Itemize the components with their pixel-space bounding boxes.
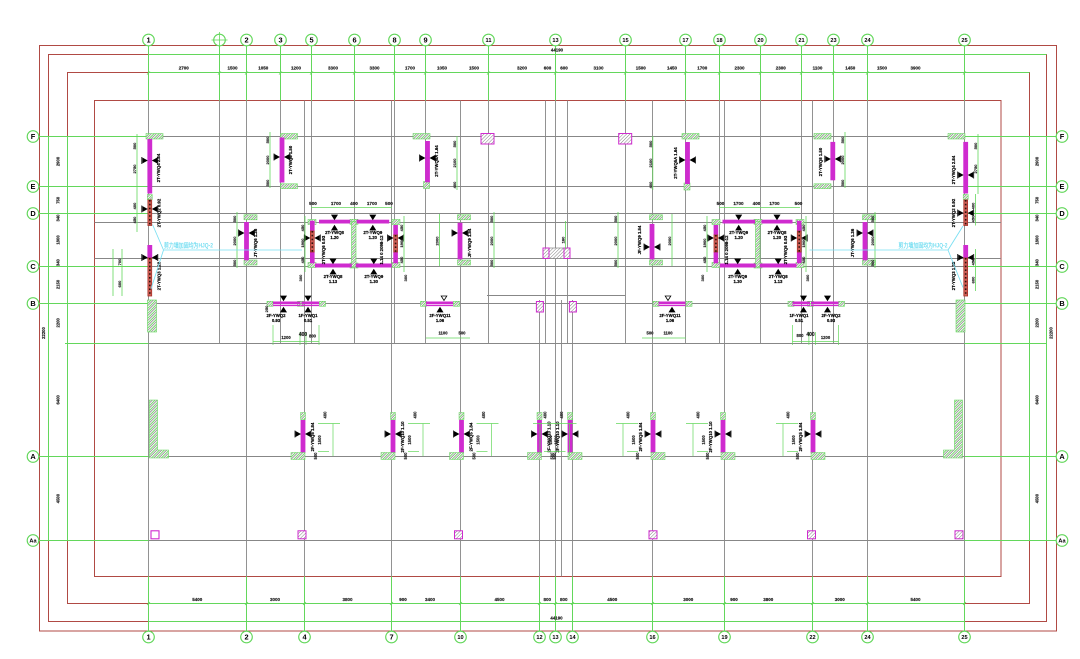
svg-text:600: 600	[560, 65, 568, 70]
svg-text:B: B	[30, 299, 35, 308]
svg-text:500: 500	[840, 136, 845, 143]
svg-text:300: 300	[403, 274, 408, 281]
svg-text:4500: 4500	[56, 493, 61, 503]
svg-text:1500: 1500	[636, 65, 647, 70]
svg-text:500: 500	[552, 452, 557, 460]
svg-text:400: 400	[559, 411, 564, 419]
svg-text:JT-YWQ6 1.36: JT-YWQ6 1.36	[253, 228, 258, 257]
svg-text:2T-YWQ8 1.50: 2T-YWQ8 1.50	[288, 145, 293, 174]
svg-text:500: 500	[489, 259, 494, 266]
svg-text:3300: 3300	[369, 65, 380, 70]
svg-text:500: 500	[717, 201, 725, 206]
svg-text:300: 300	[298, 274, 303, 281]
svg-text:800: 800	[560, 597, 568, 602]
svg-text:22: 22	[809, 635, 815, 641]
svg-text:500: 500	[232, 215, 237, 222]
svg-text:450: 450	[399, 256, 404, 263]
svg-text:400: 400	[299, 332, 308, 338]
svg-text:450: 450	[801, 256, 806, 263]
svg-text:13: 13	[552, 38, 558, 44]
svg-text:500: 500	[313, 452, 318, 460]
svg-text:3100: 3100	[593, 65, 604, 70]
svg-text:0.93: 0.93	[827, 318, 836, 323]
svg-text:3000: 3000	[835, 597, 846, 602]
svg-text:2T-YWQ3 1.28: 2T-YWQ3 1.28	[951, 261, 956, 290]
svg-text:500: 500	[459, 331, 467, 336]
svg-text:400: 400	[132, 202, 137, 209]
svg-text:450: 450	[300, 256, 305, 263]
svg-text:4500: 4500	[607, 597, 618, 602]
svg-text:22200: 22200	[1049, 327, 1054, 339]
svg-text:1700: 1700	[331, 201, 342, 206]
svg-text:1450: 1450	[667, 65, 678, 70]
svg-text:1.14 0 2098-12: 1.14 0 2098-12	[379, 235, 384, 265]
svg-text:400: 400	[481, 411, 486, 419]
svg-text:400: 400	[543, 411, 548, 419]
svg-text:24: 24	[864, 38, 871, 44]
svg-text:7: 7	[389, 633, 393, 642]
svg-text:500: 500	[840, 179, 845, 186]
svg-text:400: 400	[626, 411, 631, 419]
svg-text:8: 8	[392, 36, 396, 45]
svg-text:25: 25	[961, 635, 967, 641]
svg-text:500: 500	[403, 452, 408, 460]
svg-text:2900: 2900	[56, 156, 61, 166]
svg-text:450: 450	[702, 224, 707, 231]
svg-text:500: 500	[647, 331, 655, 336]
svg-text:20: 20	[757, 38, 763, 44]
svg-text:3400: 3400	[425, 597, 436, 602]
svg-text:2300: 2300	[776, 65, 787, 70]
svg-text:1050: 1050	[437, 65, 448, 70]
svg-text:2100: 2100	[452, 158, 457, 168]
svg-text:2T-YWQ5A 1.64: 2T-YWQ5A 1.64	[434, 145, 439, 177]
svg-text:1.06: 1.06	[666, 318, 675, 323]
svg-text:1.06: 1.06	[436, 318, 445, 323]
svg-text:1500: 1500	[227, 65, 238, 70]
svg-text:2T-YWQ4 2.84: 2T-YWQ4 2.84	[156, 153, 161, 182]
svg-text:450: 450	[801, 224, 806, 231]
svg-text:500: 500	[705, 452, 710, 460]
svg-text:F: F	[1060, 132, 1065, 141]
svg-text:1500: 1500	[476, 435, 481, 445]
svg-text:1500: 1500	[548, 435, 553, 445]
svg-text:2F-YWQ10 1.10: 2F-YWQ10 1.10	[400, 421, 405, 453]
svg-text:1900: 1900	[399, 238, 404, 248]
svg-text:3000: 3000	[683, 597, 694, 602]
svg-text:2T-YWQ4 2.84: 2T-YWQ4 2.84	[951, 155, 956, 184]
svg-text:剪力墙加固均为HJQ-2: 剪力墙加固均为HJQ-2	[164, 241, 213, 250]
svg-text:500: 500	[472, 452, 477, 460]
svg-text:E: E	[1060, 182, 1065, 191]
svg-text:500: 500	[452, 140, 457, 147]
svg-text:1500: 1500	[469, 65, 480, 70]
svg-text:2F-YWQ5 1.84: 2F-YWQ5 1.84	[798, 422, 803, 451]
svg-text:1.13: 1.13	[329, 279, 338, 284]
svg-text:750: 750	[56, 196, 61, 204]
svg-text:2: 2	[244, 633, 248, 642]
svg-text:3: 3	[278, 36, 282, 45]
svg-text:2700: 2700	[179, 65, 190, 70]
svg-text:1450: 1450	[845, 65, 856, 70]
svg-text:300: 300	[805, 274, 810, 281]
svg-text:900: 900	[399, 597, 407, 602]
svg-text:2200: 2200	[1035, 317, 1040, 327]
svg-text:2150: 2150	[56, 279, 61, 289]
svg-text:400: 400	[648, 181, 653, 188]
svg-text:2T-YWQ5A 1.64: 2T-YWQ5A 1.64	[673, 147, 678, 179]
svg-text:1200: 1200	[281, 335, 291, 340]
svg-text:450: 450	[971, 258, 976, 265]
svg-text:600: 600	[971, 276, 976, 283]
svg-text:2300: 2300	[734, 65, 745, 70]
svg-text:3800: 3800	[342, 597, 353, 602]
svg-text:D: D	[1059, 209, 1065, 218]
svg-text:1700: 1700	[405, 65, 416, 70]
svg-text:500: 500	[309, 201, 317, 206]
svg-text:340: 340	[1035, 214, 1040, 222]
svg-text:44190: 44190	[551, 47, 564, 52]
svg-text:2000: 2000	[265, 155, 270, 165]
svg-text:400: 400	[806, 332, 815, 338]
svg-text:700: 700	[117, 258, 122, 265]
svg-text:500: 500	[795, 201, 803, 206]
svg-text:21: 21	[798, 38, 804, 44]
svg-text:JF-YWQ9 1.54: JF-YWQ9 1.54	[637, 225, 642, 254]
svg-text:11: 11	[486, 38, 492, 44]
svg-text:15: 15	[622, 38, 628, 44]
svg-text:1900: 1900	[702, 238, 707, 248]
svg-text:450: 450	[300, 224, 305, 231]
svg-text:1.14 0 2098-12: 1.14 0 2098-12	[724, 235, 729, 265]
svg-text:2F-YWQ5 1.84: 2F-YWQ5 1.84	[638, 422, 643, 451]
svg-text:500: 500	[232, 259, 237, 266]
svg-text:16: 16	[649, 635, 655, 641]
svg-text:A: A	[30, 452, 36, 461]
svg-text:1700: 1700	[367, 201, 378, 206]
svg-text:400: 400	[753, 201, 761, 206]
svg-text:0.51: 0.51	[795, 318, 804, 323]
svg-text:B: B	[1059, 299, 1064, 308]
svg-text:3800: 3800	[763, 597, 774, 602]
svg-text:500: 500	[648, 140, 653, 147]
svg-text:C: C	[1059, 262, 1065, 271]
svg-text:340: 340	[1035, 258, 1040, 266]
svg-text:6400: 6400	[56, 394, 61, 404]
svg-text:1200: 1200	[291, 65, 302, 70]
svg-text:22200: 22200	[41, 327, 46, 339]
svg-text:2000: 2000	[489, 236, 494, 246]
svg-text:180: 180	[561, 236, 566, 243]
svg-text:250: 250	[264, 305, 269, 312]
svg-text:500: 500	[870, 259, 875, 266]
svg-text:1.13: 1.13	[774, 279, 783, 284]
svg-text:500: 500	[613, 259, 618, 266]
svg-text:1.30: 1.30	[734, 279, 743, 284]
svg-text:1700: 1700	[733, 201, 744, 206]
svg-text:2900: 2900	[1035, 156, 1040, 166]
svg-text:800: 800	[309, 334, 317, 339]
svg-text:600: 600	[117, 280, 122, 287]
svg-text:5: 5	[309, 36, 313, 45]
svg-text:3300: 3300	[328, 65, 339, 70]
svg-text:2: 2	[244, 36, 248, 45]
svg-text:500: 500	[635, 452, 640, 460]
svg-text:23: 23	[830, 38, 836, 44]
svg-text:A: A	[1059, 452, 1065, 461]
svg-text:0.51: 0.51	[304, 318, 313, 323]
svg-text:2000: 2000	[435, 236, 440, 246]
svg-text:2T-YWQ2 0.92: 2T-YWQ2 0.92	[157, 198, 162, 227]
svg-text:1800: 1800	[1035, 235, 1040, 245]
svg-text:2F-YWQ5 1.84: 2F-YWQ5 1.84	[469, 422, 474, 451]
svg-text:JF-YWQ9 1.54: JF-YWQ9 1.54	[467, 228, 472, 257]
svg-text:400: 400	[452, 181, 457, 188]
svg-text:1900: 1900	[801, 238, 806, 248]
svg-text:C: C	[30, 262, 36, 271]
svg-text:2200: 2200	[56, 317, 61, 327]
svg-text:17: 17	[682, 38, 688, 44]
svg-text:Aa: Aa	[29, 539, 37, 545]
svg-text:2T-YWQ8 1.50: 2T-YWQ8 1.50	[818, 147, 823, 176]
svg-text:2000: 2000	[232, 236, 237, 246]
svg-text:1.20: 1.20	[369, 235, 378, 240]
svg-text:2100: 2100	[648, 158, 653, 168]
svg-text:14: 14	[569, 635, 576, 641]
svg-text:1100: 1100	[813, 65, 823, 70]
svg-text:6400: 6400	[1035, 394, 1040, 404]
svg-text:2150: 2150	[1035, 279, 1040, 289]
svg-text:1100: 1100	[663, 331, 673, 336]
svg-text:1500: 1500	[701, 435, 706, 445]
svg-text:3000: 3000	[270, 597, 281, 602]
svg-text:2000: 2000	[870, 236, 875, 246]
svg-text:4500: 4500	[494, 597, 505, 602]
svg-text:800: 800	[544, 597, 552, 602]
svg-text:400: 400	[696, 411, 701, 419]
svg-text:500: 500	[795, 452, 800, 460]
svg-text:2000: 2000	[840, 155, 845, 165]
svg-text:12: 12	[536, 635, 542, 641]
svg-text:450: 450	[399, 224, 404, 231]
svg-text:400: 400	[786, 411, 791, 419]
svg-text:剪力墙加固均为HJQ-2: 剪力墙加固均为HJQ-2	[899, 241, 948, 250]
svg-text:600: 600	[544, 65, 552, 70]
svg-text:450: 450	[971, 215, 976, 222]
svg-text:1500: 1500	[877, 65, 888, 70]
svg-text:D: D	[30, 209, 36, 218]
svg-text:2000: 2000	[613, 236, 618, 246]
svg-text:2T-YWQ2 0.92: 2T-YWQ2 0.92	[951, 198, 956, 227]
svg-text:24: 24	[864, 635, 871, 641]
svg-text:500: 500	[870, 215, 875, 222]
svg-text:1200: 1200	[821, 335, 831, 340]
svg-text:2T-YWQ6 0.93: 2T-YWQ6 0.93	[783, 235, 788, 264]
svg-text:4500: 4500	[1035, 493, 1040, 503]
svg-text:1100: 1100	[438, 331, 448, 336]
svg-text:400: 400	[413, 411, 418, 419]
svg-text:2F-YWQ10 1.10: 2F-YWQ10 1.10	[708, 421, 713, 453]
svg-text:44190: 44190	[550, 615, 563, 620]
svg-text:1700: 1700	[697, 65, 708, 70]
svg-text:1: 1	[146, 36, 150, 45]
svg-text:750: 750	[1035, 196, 1040, 204]
svg-text:500: 500	[132, 142, 137, 149]
svg-text:500: 500	[265, 179, 270, 186]
svg-text:2T-YWQ6 0.93: 2T-YWQ6 0.93	[321, 235, 326, 264]
svg-text:900: 900	[730, 597, 738, 602]
svg-text:500: 500	[265, 136, 270, 143]
svg-text:2750: 2750	[132, 164, 137, 174]
svg-text:500: 500	[613, 215, 618, 222]
svg-text:500: 500	[489, 215, 494, 222]
svg-text:13: 13	[552, 635, 558, 641]
svg-text:9: 9	[423, 36, 427, 45]
svg-text:1: 1	[146, 633, 150, 642]
svg-text:1.20: 1.20	[330, 235, 339, 240]
svg-text:450: 450	[702, 256, 707, 263]
svg-text:500: 500	[973, 142, 978, 149]
svg-text:0.93: 0.93	[272, 318, 281, 323]
svg-text:1500: 1500	[407, 435, 412, 445]
svg-text:10: 10	[457, 635, 463, 641]
svg-text:5400: 5400	[910, 597, 921, 602]
svg-text:3900: 3900	[910, 65, 921, 70]
svg-text:25: 25	[961, 38, 967, 44]
svg-text:1.30: 1.30	[370, 279, 379, 284]
svg-text:400: 400	[350, 201, 358, 206]
svg-text:1800: 1800	[56, 235, 61, 245]
svg-text:1500: 1500	[554, 435, 559, 445]
svg-text:Aa: Aa	[1058, 539, 1066, 545]
svg-text:19: 19	[721, 635, 727, 641]
svg-text:2F-YWQ5 1.84: 2F-YWQ5 1.84	[310, 422, 315, 451]
svg-text:1500: 1500	[631, 435, 636, 445]
svg-text:2T-YWQ3 1.28: 2T-YWQ3 1.28	[157, 261, 162, 290]
svg-text:340: 340	[56, 258, 61, 266]
svg-text:1500: 1500	[791, 435, 796, 445]
svg-text:JT-YWQ6 1.36: JT-YWQ6 1.36	[850, 228, 855, 257]
svg-text:1.20: 1.20	[773, 235, 782, 240]
svg-text:500: 500	[385, 201, 393, 206]
svg-text:18: 18	[716, 38, 722, 44]
svg-text:3200: 3200	[517, 65, 528, 70]
svg-text:340: 340	[56, 214, 61, 222]
svg-text:800: 800	[797, 333, 805, 338]
svg-text:400: 400	[323, 411, 328, 419]
svg-text:400: 400	[971, 202, 976, 209]
svg-text:1050: 1050	[258, 65, 269, 70]
svg-text:5400: 5400	[192, 597, 203, 602]
svg-text:1700: 1700	[769, 201, 780, 206]
svg-text:1900: 1900	[300, 238, 305, 248]
svg-text:6: 6	[352, 36, 356, 45]
svg-text:E: E	[31, 182, 36, 191]
svg-text:1.20: 1.20	[735, 235, 744, 240]
svg-text:450: 450	[132, 216, 137, 223]
svg-text:1500: 1500	[317, 435, 322, 445]
svg-text:2750: 2750	[973, 164, 978, 174]
svg-text:F: F	[31, 132, 36, 141]
svg-text:2000: 2000	[667, 236, 672, 246]
svg-text:300: 300	[700, 274, 705, 281]
